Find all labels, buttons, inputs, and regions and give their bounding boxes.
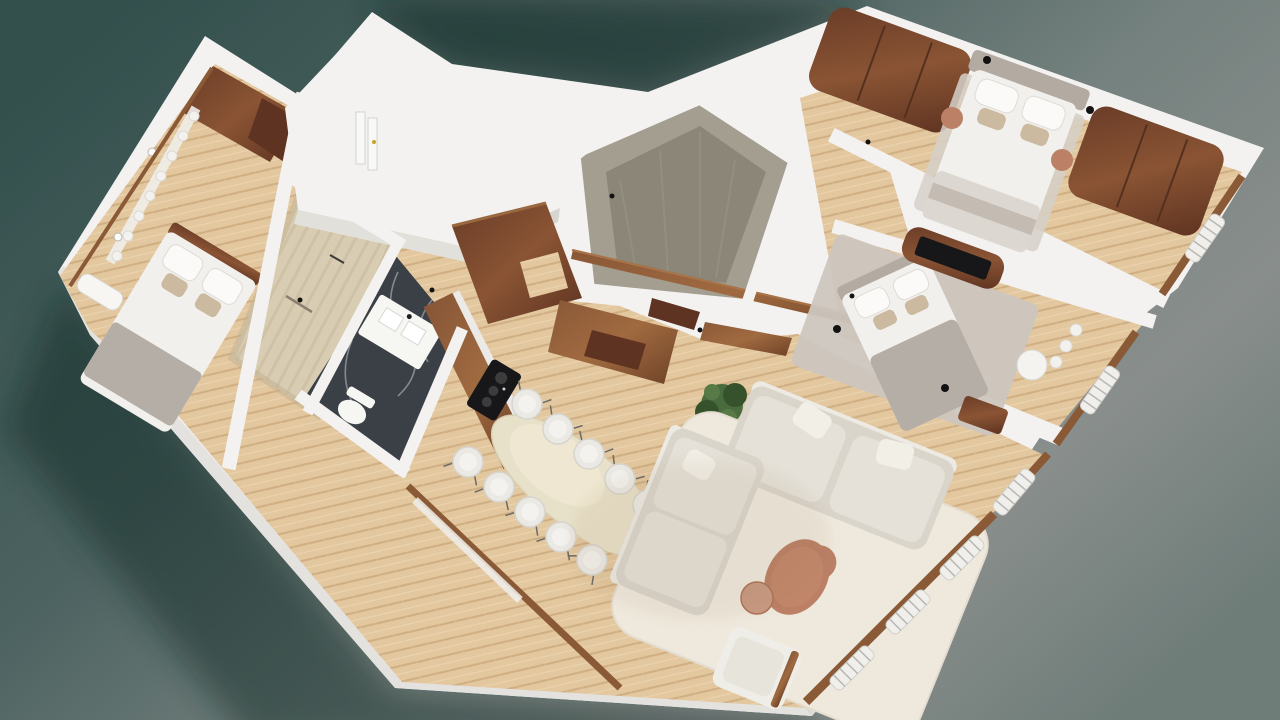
- ceiling-light-dot: [1086, 106, 1094, 114]
- pouf: [1017, 350, 1047, 380]
- wall-spotlight: [114, 233, 122, 241]
- closet-door: [356, 112, 365, 164]
- door-knob: [372, 140, 376, 144]
- floorplan-3d-render: [0, 0, 1280, 720]
- nightstand: [1051, 149, 1073, 171]
- nightstand: [941, 107, 963, 129]
- ceiling-light-dot: [983, 56, 991, 64]
- ceiling-light-dot: [941, 384, 949, 392]
- ceiling-light-dot: [833, 325, 841, 333]
- ambient-shade: [570, 460, 830, 620]
- bathroom-tap-dot: [430, 288, 435, 293]
- floorplan-stage: [0, 0, 1280, 720]
- closet-door: [368, 118, 377, 170]
